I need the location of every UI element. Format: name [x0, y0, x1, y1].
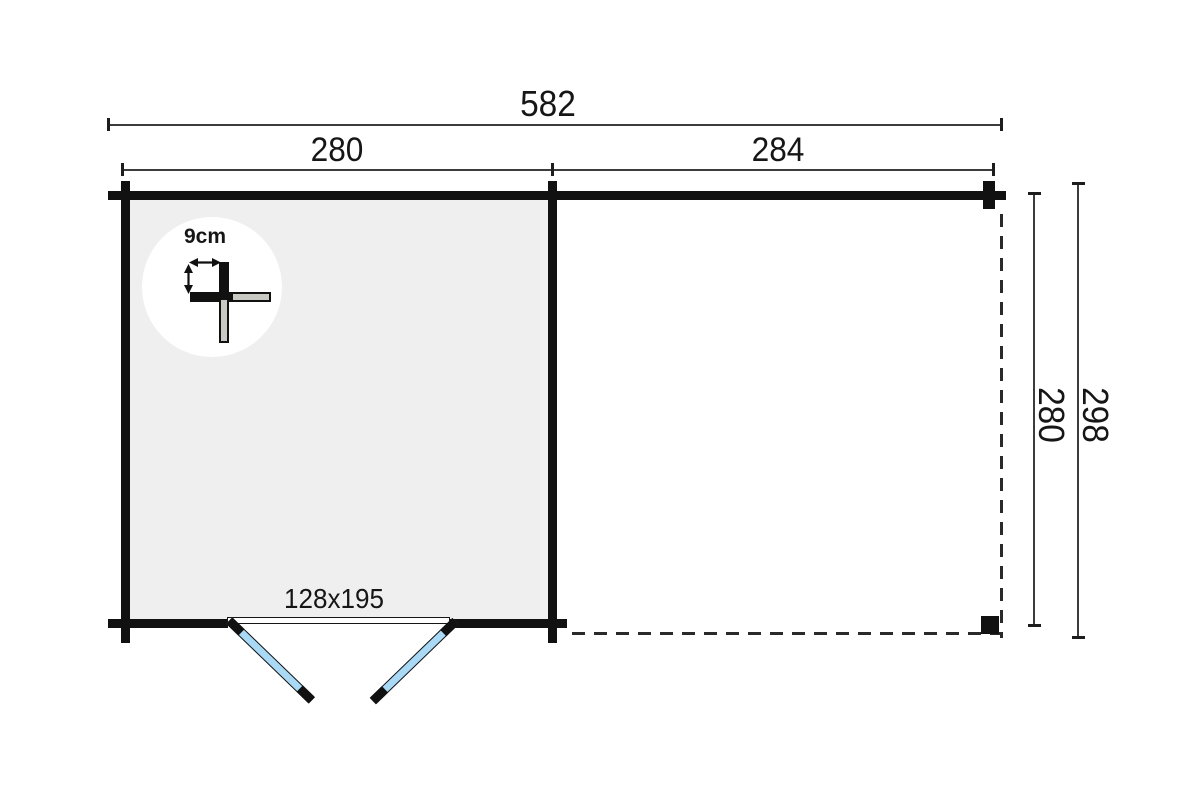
door-leaf-left	[226, 617, 314, 703]
wall-top-beam	[108, 191, 1006, 200]
dim-tick	[1028, 192, 1041, 195]
dim-tick	[1072, 182, 1085, 185]
wall-middle	[548, 181, 557, 643]
wall-bottom-right-segment	[450, 619, 567, 628]
total-width-label: 582	[520, 86, 576, 122]
canopy-support-post	[981, 616, 999, 634]
floor-plan: 128x195 9cm 582 280 284 280 298	[0, 0, 1200, 800]
canopy-width-label: 284	[752, 133, 805, 167]
door-threshold	[227, 617, 450, 624]
door-size-label: 128x195	[284, 585, 384, 613]
dim-tick	[1000, 118, 1003, 131]
door-leaf-right	[370, 618, 458, 704]
canopy-edge-bottom	[572, 632, 1003, 635]
wall-left	[121, 181, 130, 643]
log-cross-horizontal-gray	[231, 292, 271, 302]
log-cross-vertical-gray	[219, 298, 229, 343]
dim-tick	[1028, 624, 1041, 627]
dimline-total-width	[108, 124, 1002, 126]
cabin-width-label: 280	[311, 133, 364, 167]
wall-bottom-left-segment	[108, 619, 228, 628]
dim-tick	[107, 118, 110, 131]
dimline-widths	[122, 169, 994, 171]
dim-tick	[121, 163, 124, 176]
total-depth-label: 298	[1077, 387, 1113, 443]
canopy-edge-right	[1000, 214, 1003, 638]
dim-tick	[551, 163, 554, 176]
canopy-corner-post	[983, 181, 995, 209]
wall-thickness-label: 9cm	[184, 225, 226, 249]
depth-arrow-icon	[183, 264, 194, 294]
dim-tick	[1072, 636, 1085, 639]
dim-tick	[992, 163, 995, 176]
inner-depth-label: 280	[1033, 387, 1069, 443]
